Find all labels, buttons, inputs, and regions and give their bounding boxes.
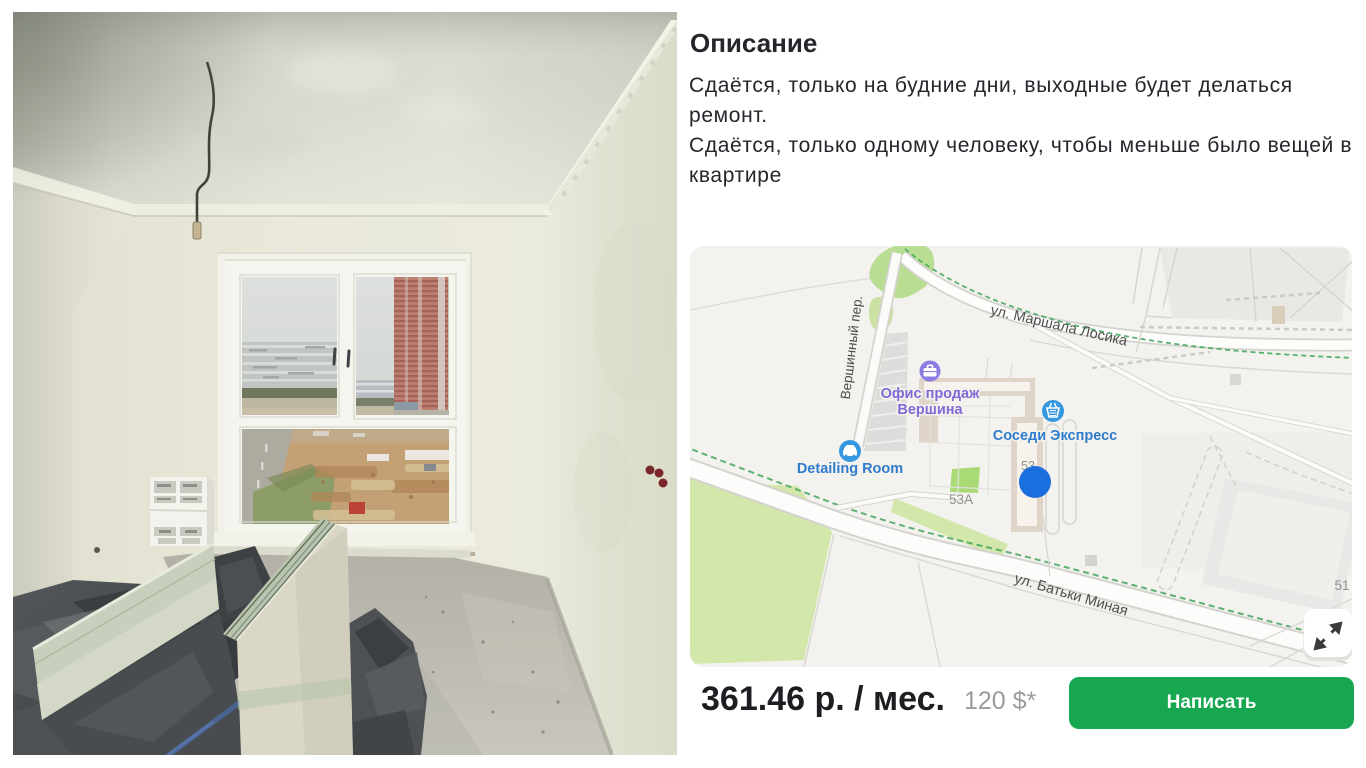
svg-text:Вершина: Вершина <box>897 402 963 418</box>
svg-text:Офис продаж: Офис продаж <box>881 386 981 402</box>
svg-text:Detailing Room: Detailing Room <box>797 461 903 477</box>
svg-text:51: 51 <box>1334 578 1349 593</box>
svg-text:53А: 53А <box>949 492 973 507</box>
svg-text:Соседи Экспресс: Соседи Экспресс <box>993 428 1117 444</box>
